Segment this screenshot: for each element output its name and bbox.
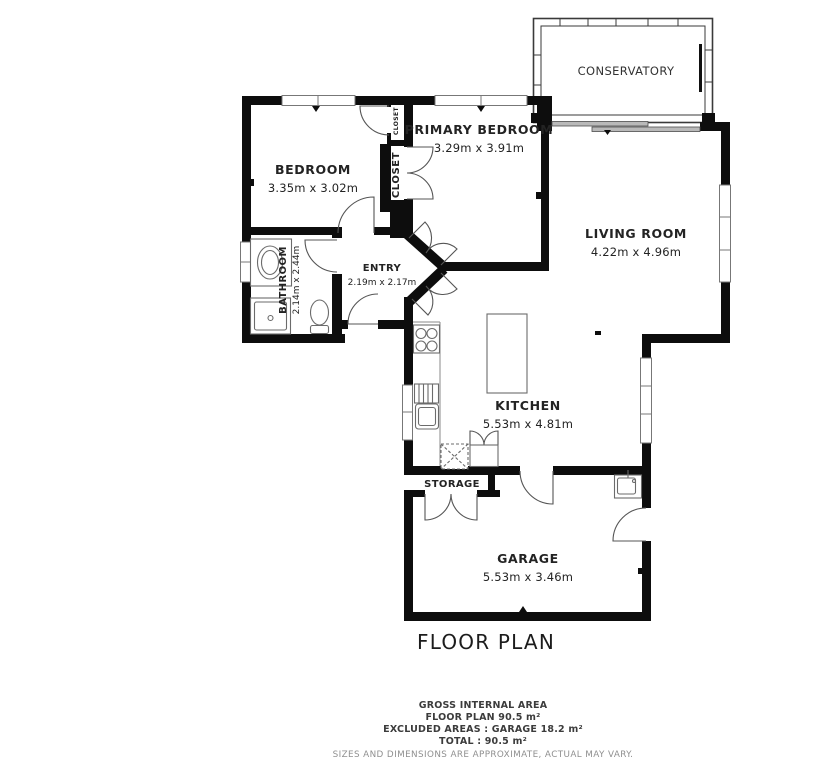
total-area-value: TOTAL : 90.5 m² (439, 736, 527, 747)
room-dims-primary-bedroom: 3.29m x 3.91m (434, 141, 524, 155)
floor-plan-page: CONSERVATORY PRIMARY BEDROOM 3.29m x 3.9… (0, 0, 840, 764)
kitchen-stove (414, 325, 440, 353)
kitchen-drainer (415, 384, 439, 403)
bedroom-window (282, 96, 355, 106)
kitchen-cabinet-doors (470, 431, 498, 445)
floor-plan-drawing: CONSERVATORY PRIMARY BEDROOM 3.29m x 3.9… (0, 0, 840, 764)
room-label-closet-large: CLOSET (391, 152, 402, 198)
room-label-conservatory: CONSERVATORY (578, 64, 675, 78)
room-label-entry: ENTRY (363, 263, 402, 274)
garage-side-door (613, 508, 646, 541)
room-label-living-room: LIVING ROOM (585, 226, 687, 241)
doors (305, 106, 646, 541)
room-label-primary-bedroom: PRIMARY BEDROOM (405, 122, 554, 137)
bathroom-window (241, 242, 251, 282)
kitchen-garage-door (520, 471, 553, 504)
floor-plan-area-value: FLOOR PLAN 90.5 m² (425, 712, 540, 723)
kitchen-utility-box (441, 444, 468, 469)
room-label-storage: STORAGE (424, 479, 480, 490)
room-dims-living-room: 4.22m x 4.96m (591, 245, 681, 259)
bathroom-fixtures (251, 239, 329, 334)
kitchen-sink (416, 404, 439, 429)
kitchen-right-window (641, 358, 652, 443)
primary-bedroom-window (435, 96, 527, 106)
gross-internal-area-label: GROSS INTERNAL AREA (419, 700, 548, 711)
bathroom-door (305, 240, 337, 272)
storage-double-door (425, 494, 477, 520)
page-title: FLOOR PLAN (417, 630, 555, 654)
closet-large-doors (407, 147, 433, 199)
kitchen-fixtures (413, 314, 527, 469)
room-dims-kitchen: 5.53m x 4.81m (483, 417, 573, 431)
kitchen-cabinet (470, 445, 498, 467)
kitchen-left-window (403, 385, 413, 440)
room-label-garage: GARAGE (497, 551, 559, 566)
conservatory-corner-right (702, 113, 715, 123)
room-label-bedroom: BEDROOM (275, 162, 351, 177)
room-label-bathroom: BATHROOM (278, 246, 289, 314)
bedroom-door (338, 197, 374, 233)
room-label-kitchen: KITCHEN (495, 398, 561, 413)
room-dims-bedroom: 3.35m x 3.02m (268, 181, 358, 195)
disclaimer-text: SIZES AND DIMENSIONS ARE APPROXIMATE, AC… (333, 750, 634, 760)
bathroom-toilet (311, 300, 329, 334)
living-room-window (720, 185, 731, 282)
area-summary: GROSS INTERNAL AREA FLOOR PLAN 90.5 m² E… (333, 700, 634, 760)
entry-kitchen-door (348, 294, 378, 324)
room-dims-bathroom: 2.14m x 2.44m (292, 246, 302, 315)
closet-small-door (360, 106, 389, 135)
room-dims-garage: 5.53m x 3.46m (483, 570, 573, 584)
room-dims-entry: 2.19m x 2.17m (348, 278, 417, 288)
room-label-closet-small: CLOSET (393, 106, 400, 135)
excluded-areas-value: EXCLUDED AREAS : GARAGE 18.2 m² (383, 724, 583, 735)
kitchen-island (487, 314, 527, 393)
